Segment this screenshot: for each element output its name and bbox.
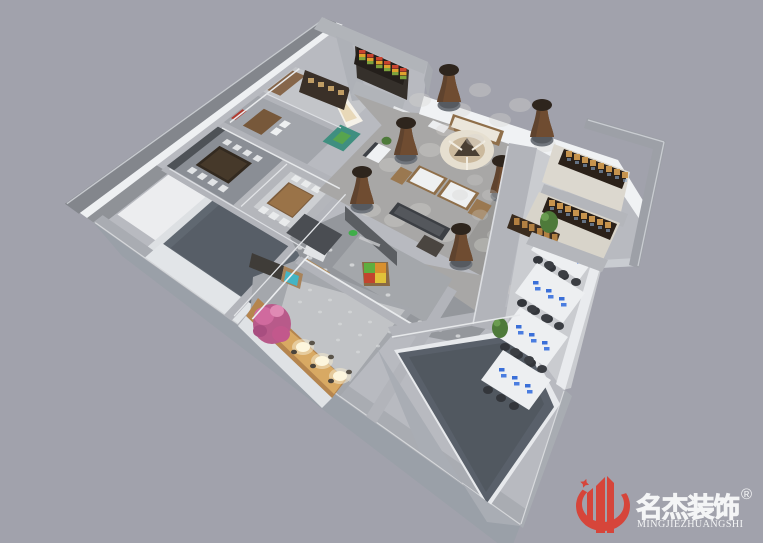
svg-text:®: ® <box>741 486 752 503</box>
svg-text:MINGJIEZHUANGSHI: MINGJIEZHUANGSHI <box>637 519 743 530</box>
